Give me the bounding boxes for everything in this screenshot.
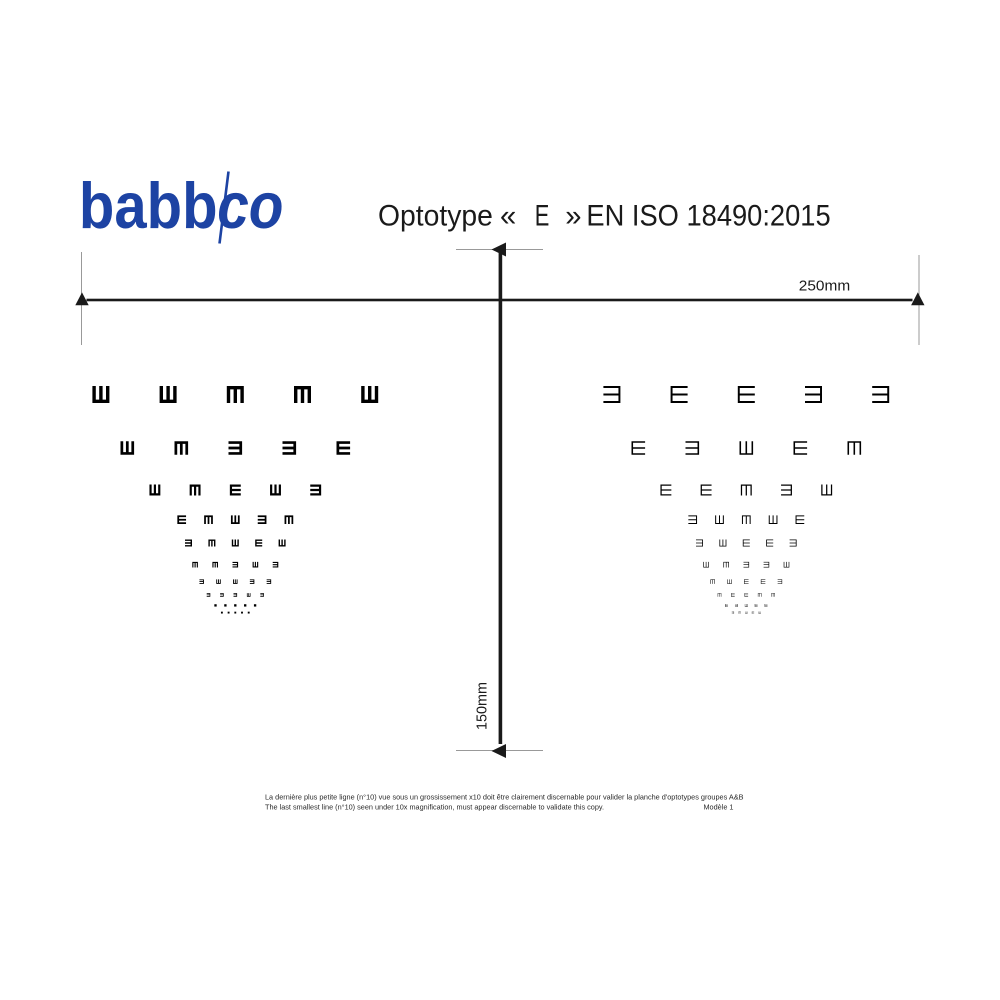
svg-text:EN ISO 18490:2015: EN ISO 18490:2015 [586, 198, 830, 231]
svg-text:»: » [565, 200, 581, 232]
svg-text:250mm: 250mm [799, 279, 850, 294]
svg-text:«: « [500, 200, 516, 232]
svg-text:150mm: 150mm [475, 682, 491, 730]
svg-text:Optotype: Optotype [378, 200, 493, 232]
svg-text:La dernière plus petite ligne: La dernière plus petite ligne (n°10) vue… [265, 793, 744, 802]
svg-text:The last smallest line (n°10): The last smallest line (n°10) seen under… [265, 803, 604, 812]
svg-text:co: co [217, 170, 283, 242]
svg-text:E: E [535, 200, 550, 232]
svg-text:Modèle 1: Modèle 1 [703, 803, 733, 812]
svg-text:babb: babb [79, 170, 218, 243]
